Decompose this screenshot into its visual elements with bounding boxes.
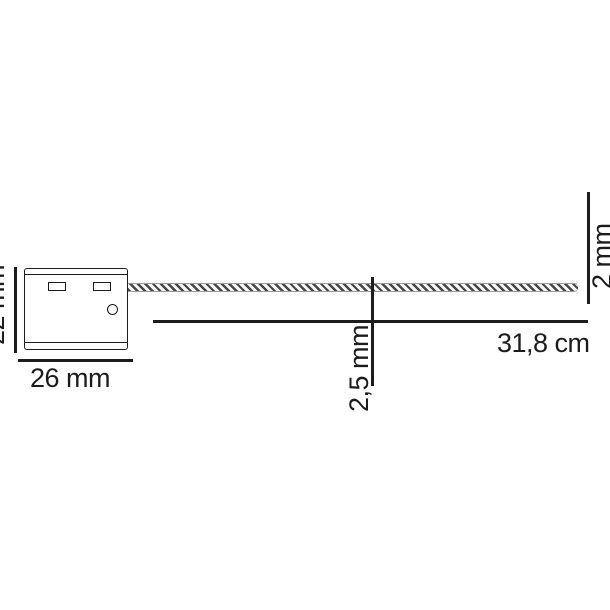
label-cable-tip: 2 mm: [589, 224, 610, 290]
seal-body: [24, 268, 128, 351]
dimension-drawing: 26 mm 31,8 cm 2,5 mm 2 mm 22 mm: [0, 0, 610, 610]
dimension-line-body-width: [18, 359, 133, 363]
seal-lid-line-top: [25, 274, 127, 275]
label-cable-length: 31,8 cm: [497, 330, 590, 357]
seal-slot-right: [93, 282, 111, 291]
label-body-height: 22 mm: [0, 265, 9, 345]
seal-slot-left: [48, 282, 66, 291]
seal-lid-line-bottom: [25, 342, 127, 343]
cable: [128, 283, 578, 292]
dimension-line-body-height: [14, 267, 18, 353]
seal-hole: [107, 304, 118, 315]
label-body-width: 26 mm: [30, 365, 110, 392]
label-cable-diameter: 2,5 mm: [346, 325, 373, 412]
